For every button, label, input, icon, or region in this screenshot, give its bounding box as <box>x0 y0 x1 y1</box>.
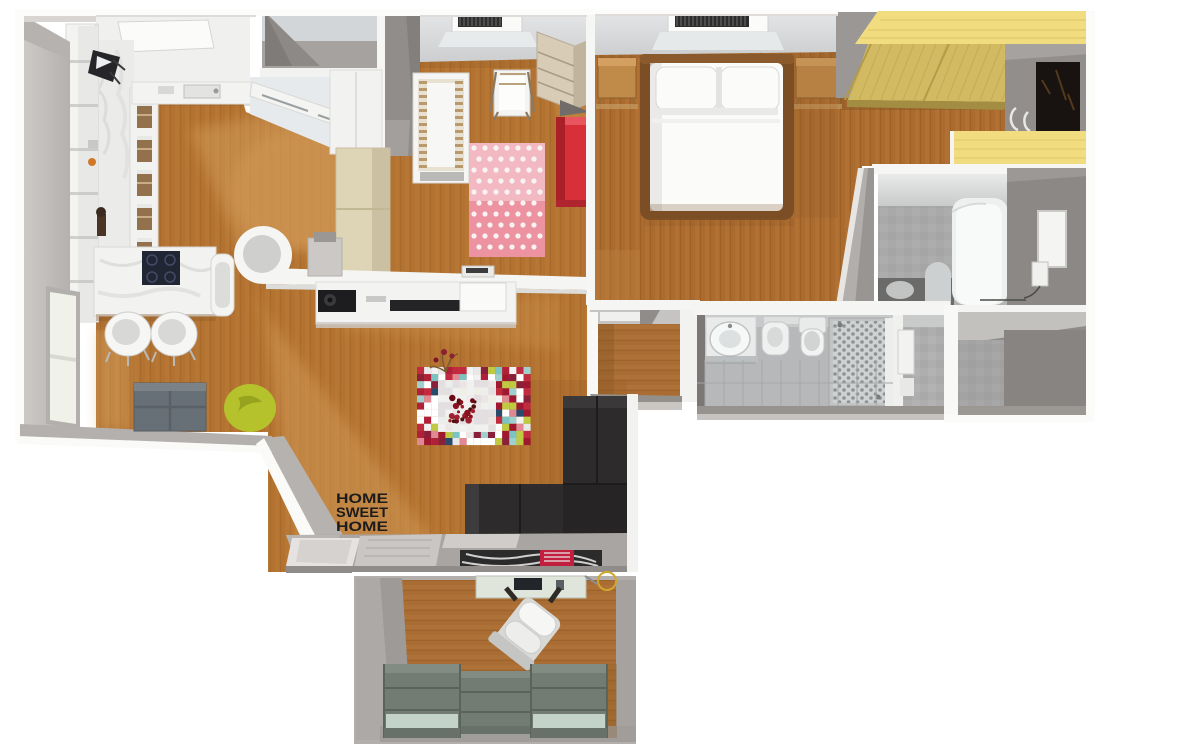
svg-text:HOME: HOME <box>336 518 388 534</box>
